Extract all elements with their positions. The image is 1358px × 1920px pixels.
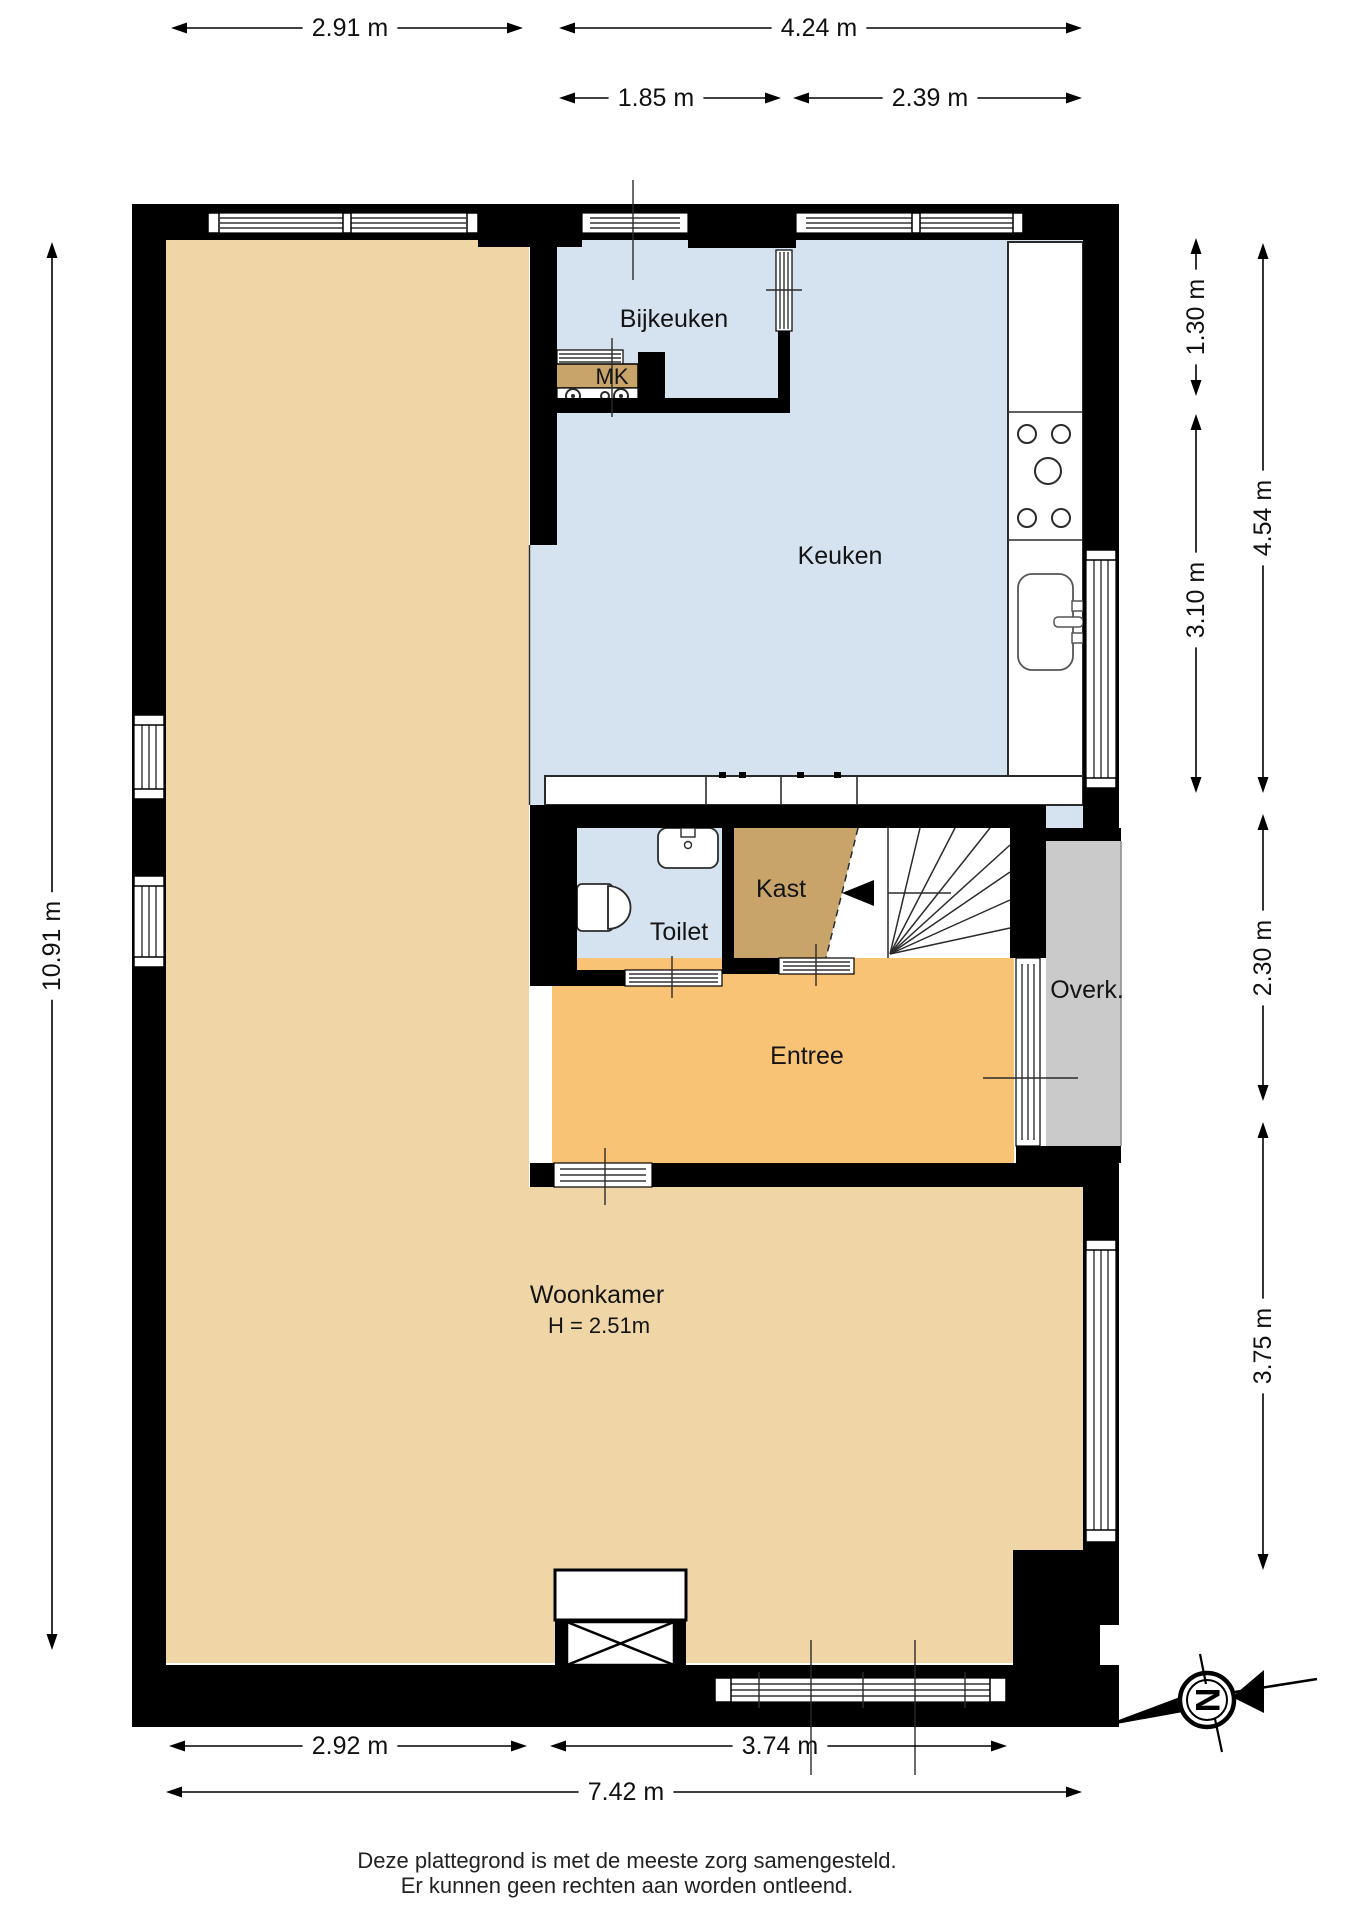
dimension-label: 2.91 m bbox=[312, 14, 388, 42]
window-right-woonkamer bbox=[1086, 1240, 1116, 1542]
dimension: 1.85 m bbox=[559, 84, 781, 112]
footer: Deze plattegrond is met de meeste zorg s… bbox=[357, 1848, 896, 1898]
dimension: 4.54 m bbox=[1249, 243, 1277, 793]
keuken-room bbox=[530, 240, 1084, 828]
dimension: 2.39 m bbox=[793, 84, 1082, 112]
wc bbox=[577, 884, 631, 931]
floorplan-drawing: N Bijkeuken MK Keuken Kast Toilet Overk.… bbox=[0, 0, 1358, 1920]
window-left-1 bbox=[134, 715, 164, 799]
dimension-label: 1.30 m bbox=[1182, 279, 1210, 355]
label-bijkeuken: Bijkeuken bbox=[620, 305, 728, 333]
dimension: 1.30 m bbox=[1182, 238, 1210, 396]
window-woonkamer-top bbox=[208, 213, 478, 233]
dimension-label: 3.10 m bbox=[1182, 562, 1210, 638]
compass: N bbox=[1100, 1654, 1317, 1752]
label-mk: MK bbox=[596, 364, 629, 389]
footer-line2: Er kunnen geen rechten aan worden ontlee… bbox=[401, 1873, 854, 1898]
label-kast: Kast bbox=[756, 875, 806, 903]
dimension-label: 10.91 m bbox=[38, 901, 66, 991]
dimension-label: 4.24 m bbox=[781, 14, 857, 42]
window-bijkeuken-top bbox=[582, 213, 688, 233]
dimension-label: 2.30 m bbox=[1249, 920, 1277, 996]
label-overkapping: Overk. bbox=[1050, 976, 1124, 1004]
compass-letter: N bbox=[1188, 1688, 1226, 1713]
dimension: 2.30 m bbox=[1249, 814, 1277, 1101]
rooms bbox=[166, 240, 1121, 1663]
kitchen-counter-bottom bbox=[545, 776, 1083, 805]
kitchen-sink bbox=[1018, 574, 1083, 670]
dimension-label: 3.75 m bbox=[1249, 1308, 1277, 1384]
label-woonkamer-height: H = 2.51m bbox=[548, 1313, 650, 1338]
floorplan-page: N Bijkeuken MK Keuken Kast Toilet Overk.… bbox=[0, 0, 1358, 1920]
window-left-2 bbox=[134, 876, 164, 967]
dimension: 10.91 m bbox=[38, 242, 66, 1650]
dimension: 4.24 m bbox=[559, 14, 1082, 42]
dimension-label: 2.39 m bbox=[892, 84, 968, 112]
dimension-label: 4.54 m bbox=[1249, 480, 1277, 556]
label-woonkamer: Woonkamer bbox=[530, 1281, 664, 1309]
kitchen-counter-right bbox=[1008, 242, 1083, 776]
dimension-label: 2.92 m bbox=[312, 1732, 388, 1760]
label-toilet: Toilet bbox=[650, 918, 708, 946]
window-right-keuken bbox=[1086, 550, 1116, 788]
label-keuken: Keuken bbox=[798, 542, 883, 570]
tv-cabinet bbox=[555, 1570, 686, 1665]
footer-line1: Deze plattegrond is met de meeste zorg s… bbox=[357, 1848, 896, 1873]
folding-door bbox=[557, 350, 623, 365]
hand-basin bbox=[658, 828, 718, 868]
label-entree: Entree bbox=[770, 1042, 844, 1070]
dimension: 3.74 m bbox=[550, 1732, 1007, 1760]
dimension: 7.42 m bbox=[166, 1778, 1082, 1806]
dimension: 2.91 m bbox=[171, 14, 523, 42]
dimension: 2.92 m bbox=[169, 1732, 527, 1760]
dimension-label: 1.85 m bbox=[618, 84, 694, 112]
dimension-label: 7.42 m bbox=[588, 1778, 664, 1806]
dimension: 3.75 m bbox=[1249, 1122, 1277, 1570]
dimension: 3.10 m bbox=[1182, 414, 1210, 793]
window-keuken-top bbox=[796, 213, 1023, 233]
dimension-label: 3.74 m bbox=[742, 1732, 818, 1760]
